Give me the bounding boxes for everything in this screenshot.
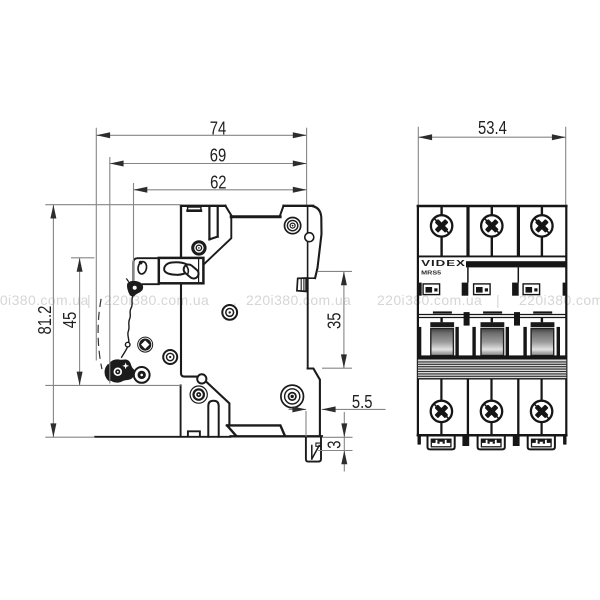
svg-text:220i380.com.ua: 220i380.com.ua	[0, 292, 89, 308]
svg-text:45: 45	[59, 312, 80, 328]
svg-text:|: |	[496, 292, 500, 308]
svg-text:MRS5: MRS5	[421, 270, 442, 276]
svg-text:81.2: 81.2	[34, 306, 55, 335]
svg-text:53.4: 53.4	[478, 117, 507, 138]
svg-text:220i380.com.ua: 220i380.com.ua	[104, 292, 209, 308]
svg-text:74: 74	[210, 118, 226, 139]
svg-text:69: 69	[210, 145, 226, 166]
svg-text:5.5: 5.5	[352, 392, 373, 413]
svg-text:VIDEX: VIDEX	[421, 260, 466, 269]
svg-text:3: 3	[324, 440, 345, 448]
svg-text:35: 35	[324, 313, 345, 329]
svg-text:|: |	[87, 292, 91, 308]
svg-text:62: 62	[210, 172, 226, 193]
svg-text:220i380.com.ua: 220i380.com.ua	[246, 292, 351, 308]
